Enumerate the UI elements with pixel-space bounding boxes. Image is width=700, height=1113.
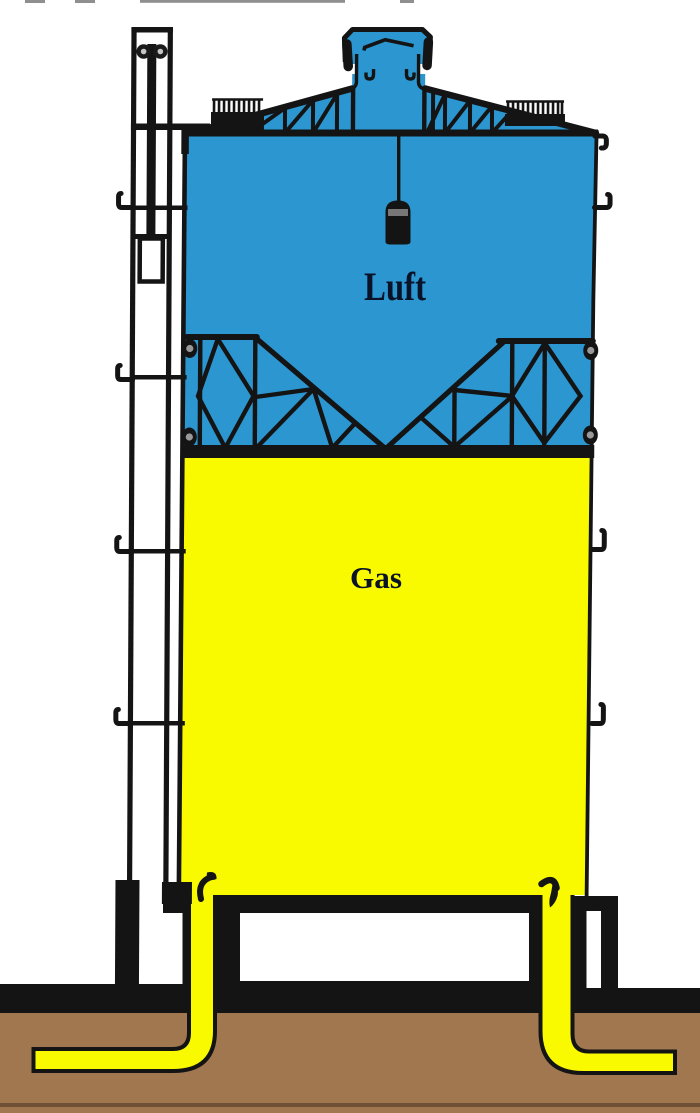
svg-text:Gas: Gas [350, 560, 402, 595]
svg-text:Luft: Luft [364, 264, 427, 309]
